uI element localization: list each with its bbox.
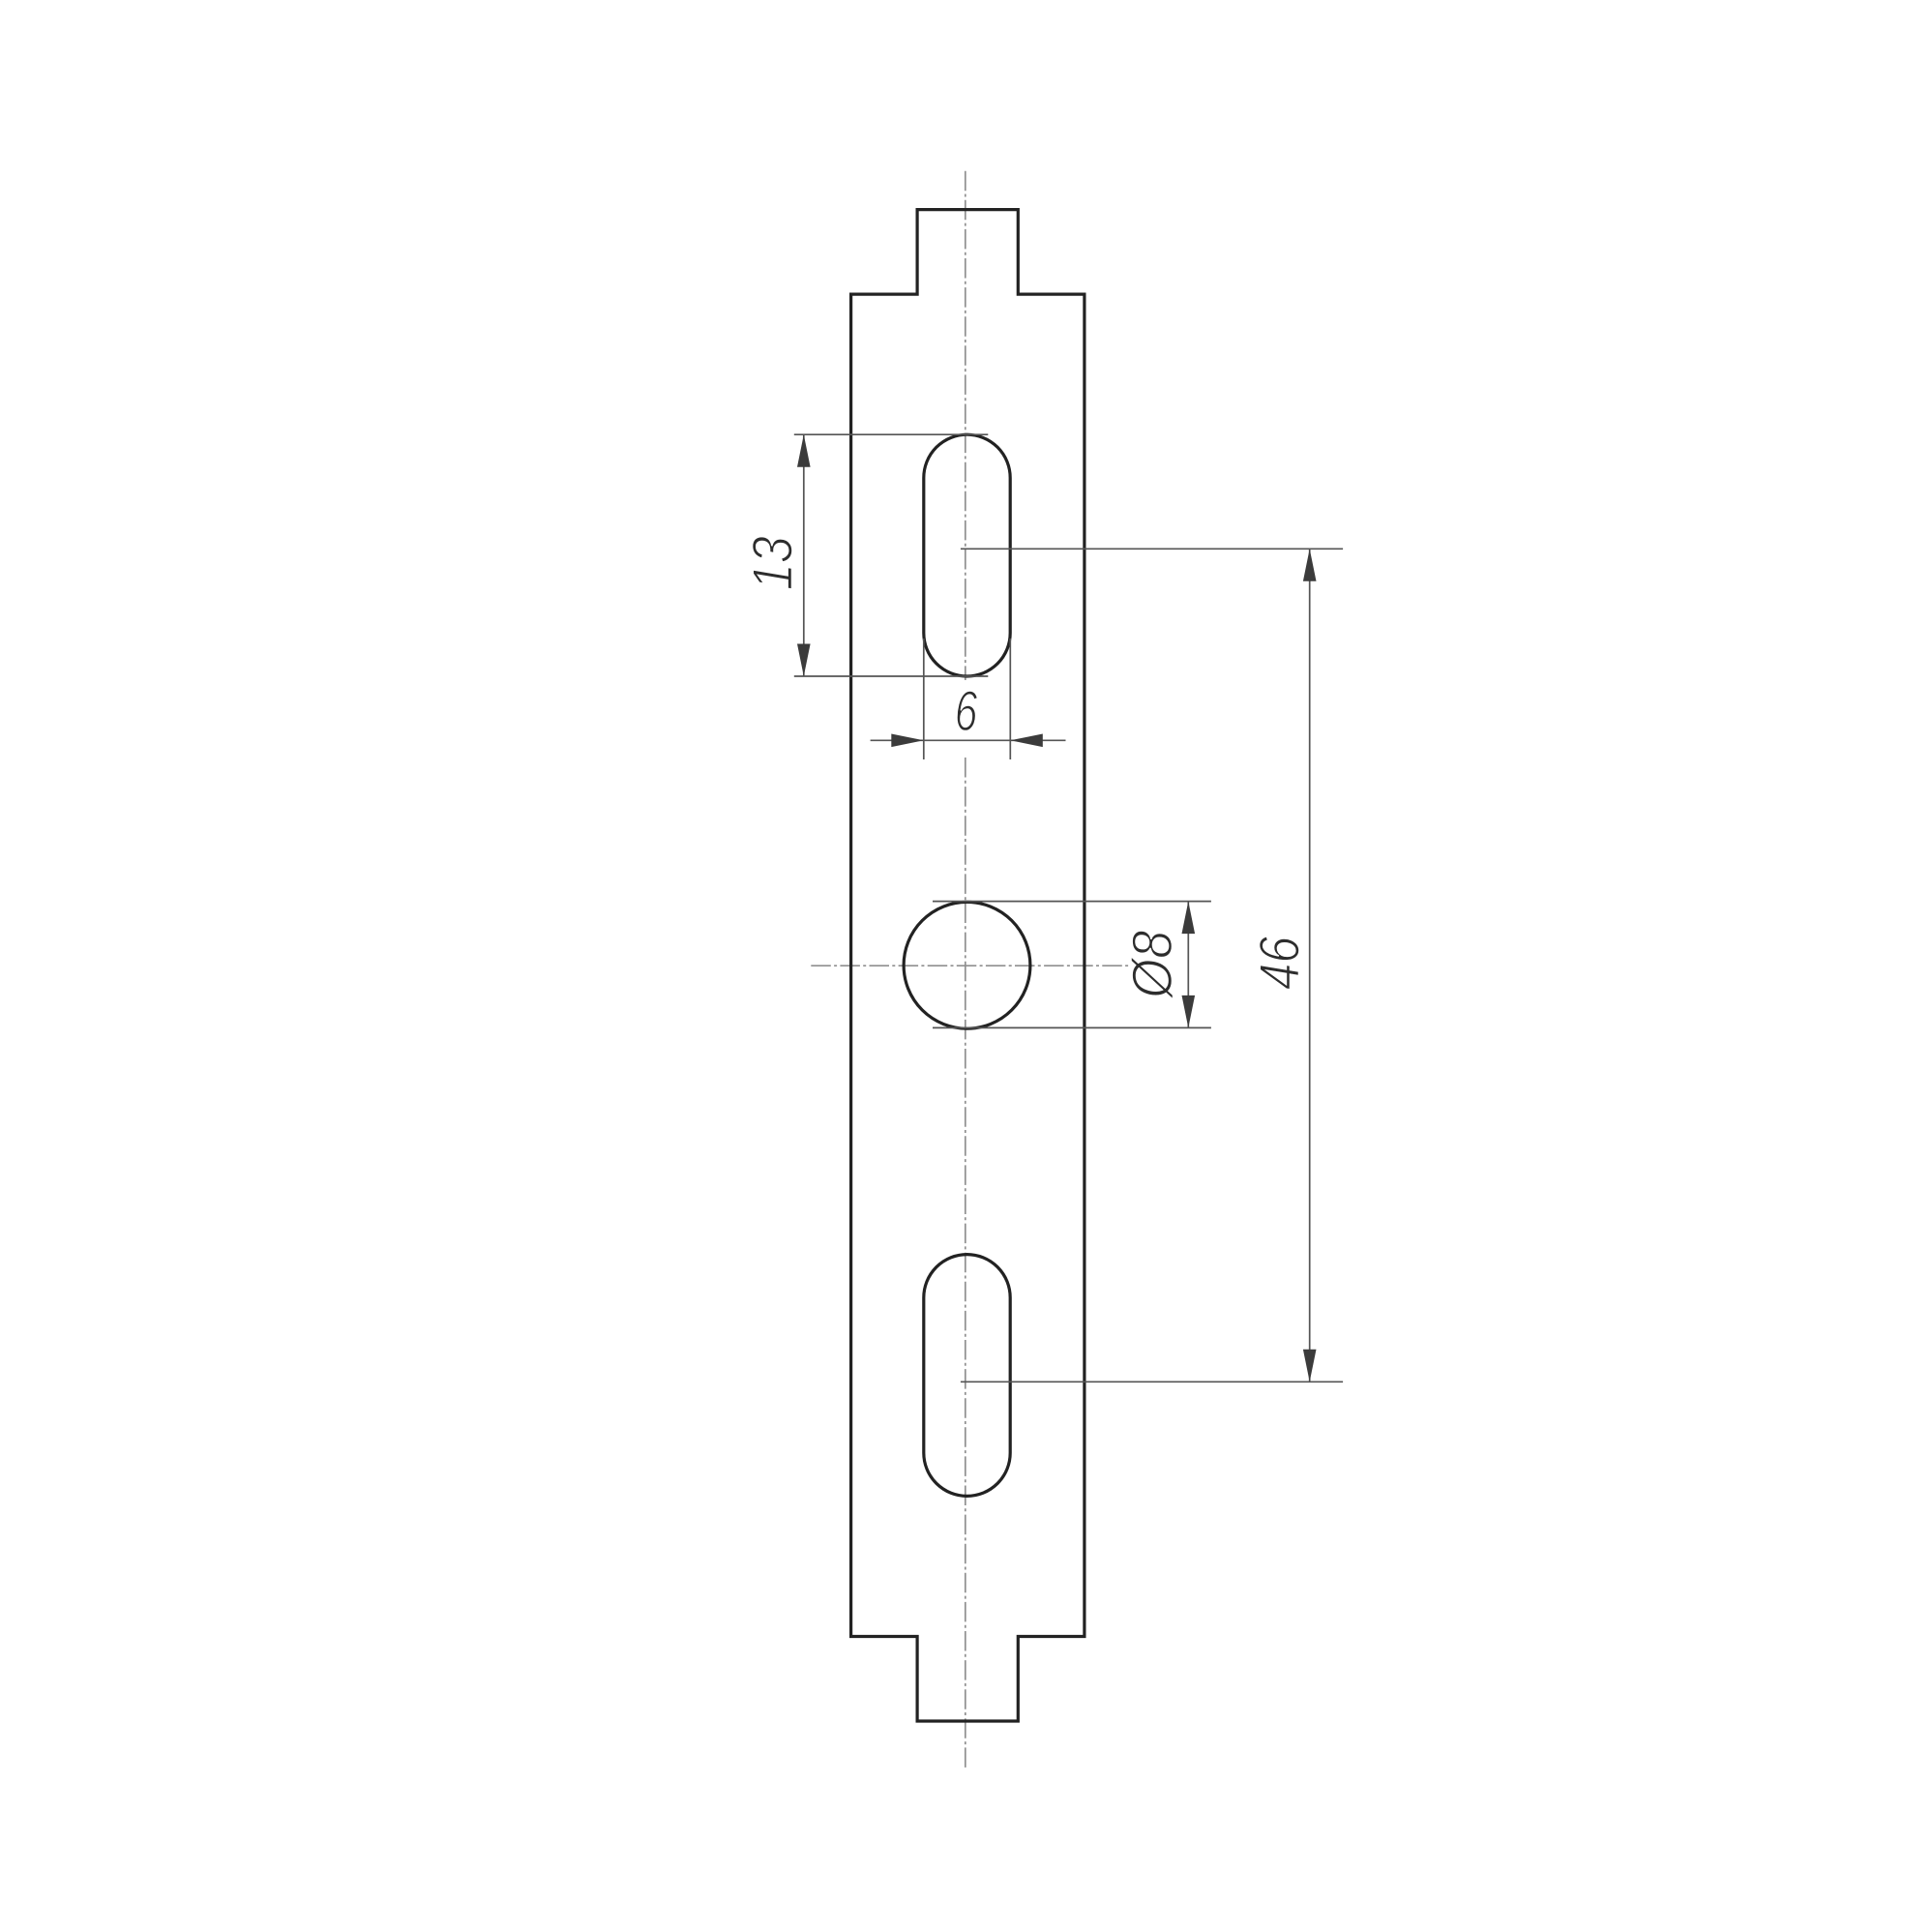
- svg-text:13: 13: [742, 536, 805, 590]
- svg-text:6: 6: [955, 680, 978, 743]
- svg-text:Ø8: Ø8: [1121, 931, 1184, 1000]
- svg-text:46: 46: [1249, 936, 1312, 990]
